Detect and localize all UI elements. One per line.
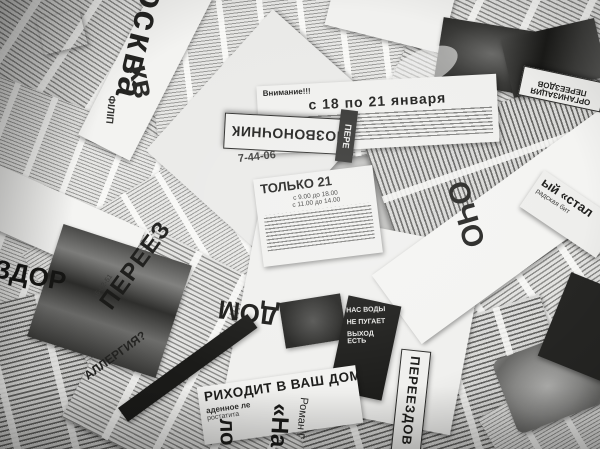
- headline-lo: ло: [216, 418, 239, 446]
- headline-pereezdov: ПЕРЕЕЗДОВ: [400, 356, 422, 447]
- headline-filip: ФІЛІП: [103, 95, 116, 124]
- slogan-line-3: ВЫХОД ЕСТЬ: [347, 330, 393, 346]
- dark-photo: [279, 293, 347, 348]
- headline-pozvonochnik: ПОЗВОНОЧНИК: [231, 124, 347, 144]
- slogan-line-2: НЕ ПУГАЕТ: [347, 318, 393, 327]
- spine-ad-scrap: ПОЗВОНОЧНИК: [223, 113, 355, 156]
- newspaper-collage-photo: осква кв ФІЛІП Внимание!!! с 18 по 21 ян…: [0, 0, 600, 449]
- slogan-line-1: НАС ВОДЫ: [346, 306, 392, 315]
- schedule-ad-scrap: ТОЛЬКО 21 с 9.00 до 18.00 с 11.00 до 14.…: [253, 165, 383, 267]
- headline-na: «На: [266, 403, 292, 448]
- headline-kv: кв: [123, 62, 159, 101]
- headline-pere: ПЕРЕ: [341, 123, 353, 148]
